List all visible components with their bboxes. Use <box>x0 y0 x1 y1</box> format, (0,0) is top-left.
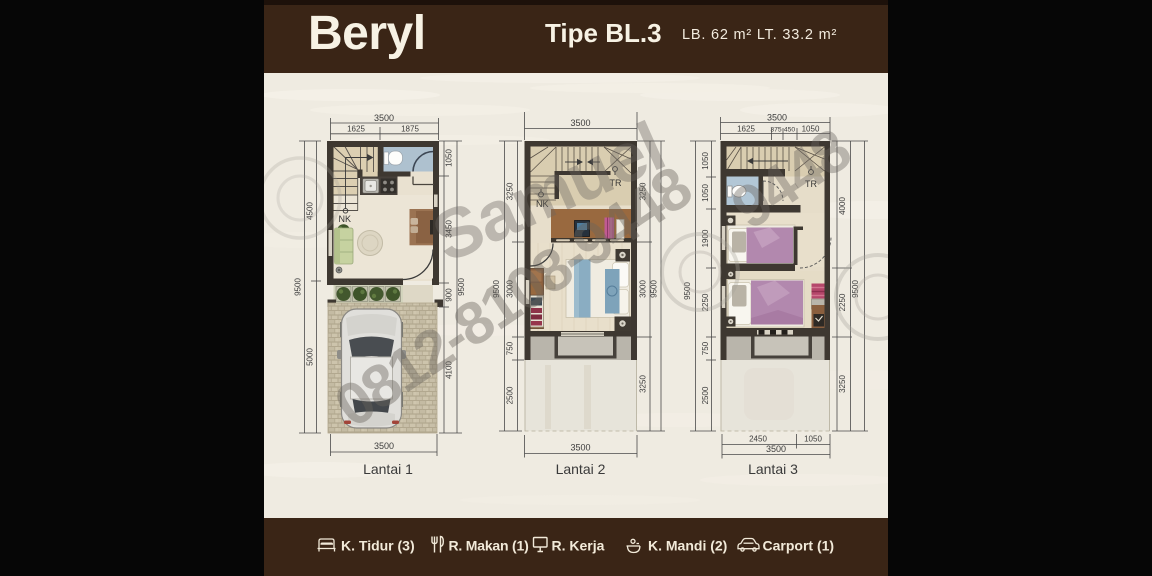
svg-text:Lantai 1: Lantai 1 <box>363 461 413 477</box>
svg-text:9500: 9500 <box>650 280 659 298</box>
svg-text:1050: 1050 <box>445 149 454 167</box>
svg-text:R. Makan (1): R. Makan (1) <box>449 538 529 554</box>
svg-text:2500: 2500 <box>506 386 515 404</box>
svg-text:Beryl: Beryl <box>308 7 426 60</box>
svg-text:Tipe BL.3: Tipe BL.3 <box>545 18 662 48</box>
svg-text:LB. 62 m² LT. 33.2 m²: LB. 62 m² LT. 33.2 m² <box>682 27 837 43</box>
svg-text:3500: 3500 <box>570 443 590 453</box>
svg-text:1875: 1875 <box>401 124 419 133</box>
svg-text:Lantai 3: Lantai 3 <box>748 461 798 477</box>
svg-text:1625: 1625 <box>347 124 365 133</box>
svg-text:3500: 3500 <box>374 441 394 451</box>
svg-text:9500: 9500 <box>294 278 303 296</box>
svg-text:2500: 2500 <box>701 386 710 404</box>
svg-text:3250: 3250 <box>838 375 847 393</box>
svg-text:K. Tidur (3): K. Tidur (3) <box>341 538 415 554</box>
svg-text:1900: 1900 <box>701 229 710 247</box>
svg-text:1050: 1050 <box>701 152 710 170</box>
svg-text:3500: 3500 <box>766 444 786 454</box>
svg-text:375: 375 <box>770 126 782 133</box>
svg-text:1050: 1050 <box>701 184 710 202</box>
svg-text:3500: 3500 <box>767 112 787 122</box>
svg-text:R. Kerja: R. Kerja <box>552 538 605 554</box>
svg-text:450: 450 <box>784 126 796 133</box>
svg-text:NK: NK <box>339 214 352 224</box>
svg-text:2450: 2450 <box>749 435 767 444</box>
svg-text:3000: 3000 <box>639 280 648 298</box>
svg-text:750: 750 <box>701 341 710 355</box>
svg-text:Lantai 2: Lantai 2 <box>556 461 606 477</box>
svg-text:750: 750 <box>506 341 515 355</box>
svg-text:3500: 3500 <box>374 113 394 123</box>
svg-text:3500: 3500 <box>570 118 590 128</box>
svg-text:5000: 5000 <box>306 348 315 366</box>
svg-text:K. Mandi (2): K. Mandi (2) <box>648 538 727 554</box>
svg-text:Carport (1): Carport (1) <box>763 538 835 554</box>
svg-text:3250: 3250 <box>639 375 648 393</box>
svg-text:4000: 4000 <box>838 197 847 215</box>
svg-text:1050: 1050 <box>804 435 822 444</box>
svg-text:1625: 1625 <box>737 124 755 133</box>
